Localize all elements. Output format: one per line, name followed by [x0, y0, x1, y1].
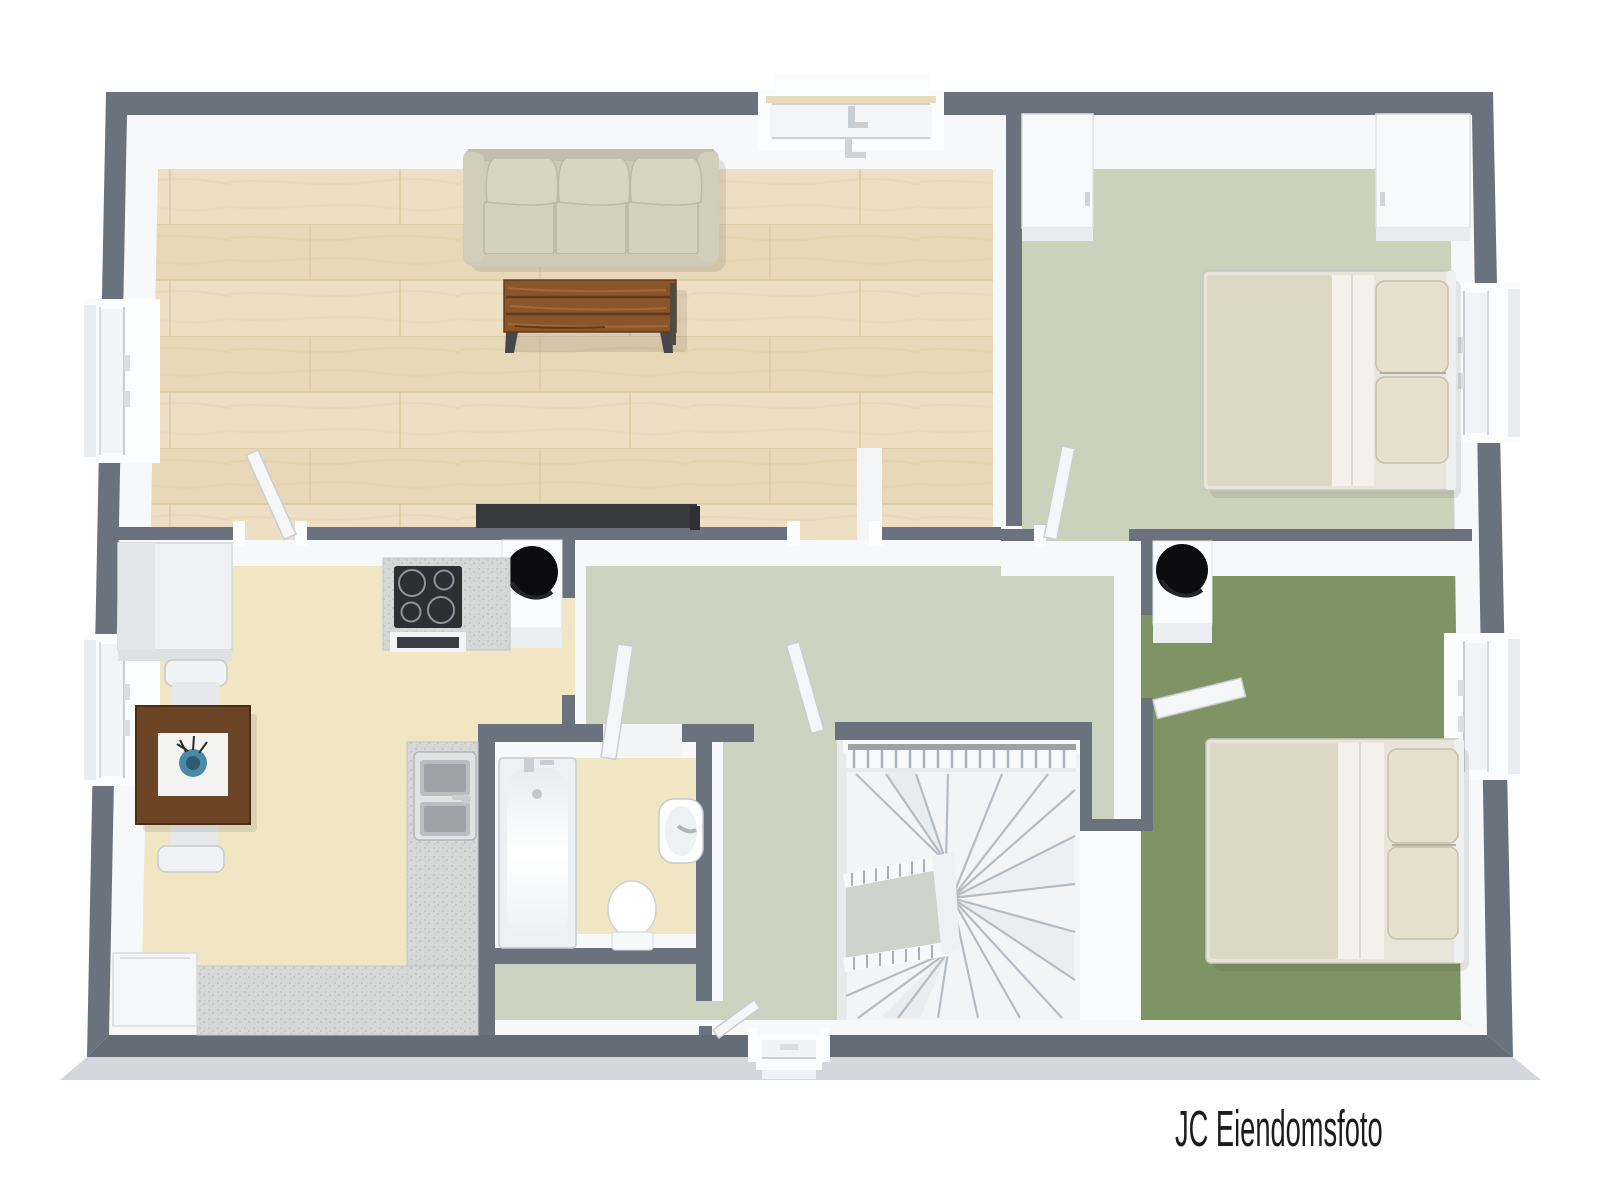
svg-text:JC Eiendomsfoto: JC Eiendomsfoto [1175, 1100, 1383, 1157]
